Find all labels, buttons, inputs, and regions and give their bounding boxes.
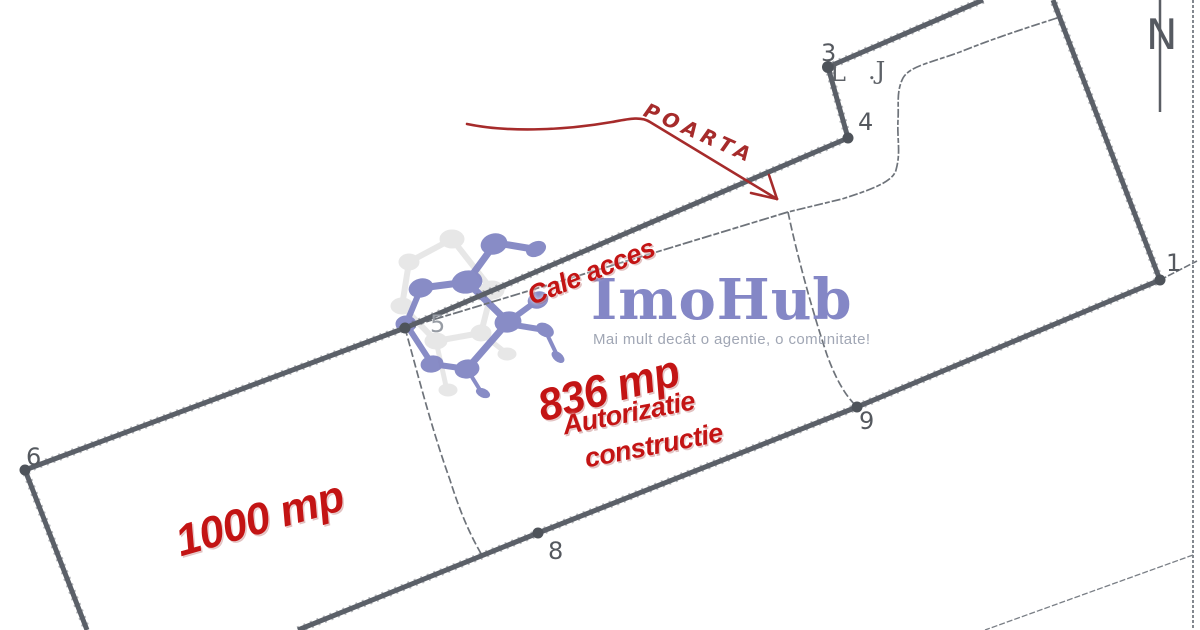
point-label-1: 1 (1166, 249, 1181, 277)
point-label-6: 6 (26, 443, 41, 471)
cadastral-plan-image: N 3 4 5 6 8 9 1 L .J ImoHub Mai mult dec… (0, 0, 1200, 630)
point-label-4: 4 (858, 108, 873, 136)
remnant-mark-left: L (830, 59, 846, 87)
watermark-tagline: Mai mult decât o agentie, o comunitate! (593, 331, 870, 348)
point-label-5: 5 (430, 310, 445, 338)
watermark-brand: ImoHub (591, 272, 853, 328)
north-label: N (1146, 14, 1177, 56)
point-label-8: 8 (548, 537, 563, 565)
bottom-right-neighbour-line (985, 555, 1193, 630)
point-label-9: 9 (859, 407, 874, 435)
remnant-mark-right: .J (868, 57, 885, 85)
